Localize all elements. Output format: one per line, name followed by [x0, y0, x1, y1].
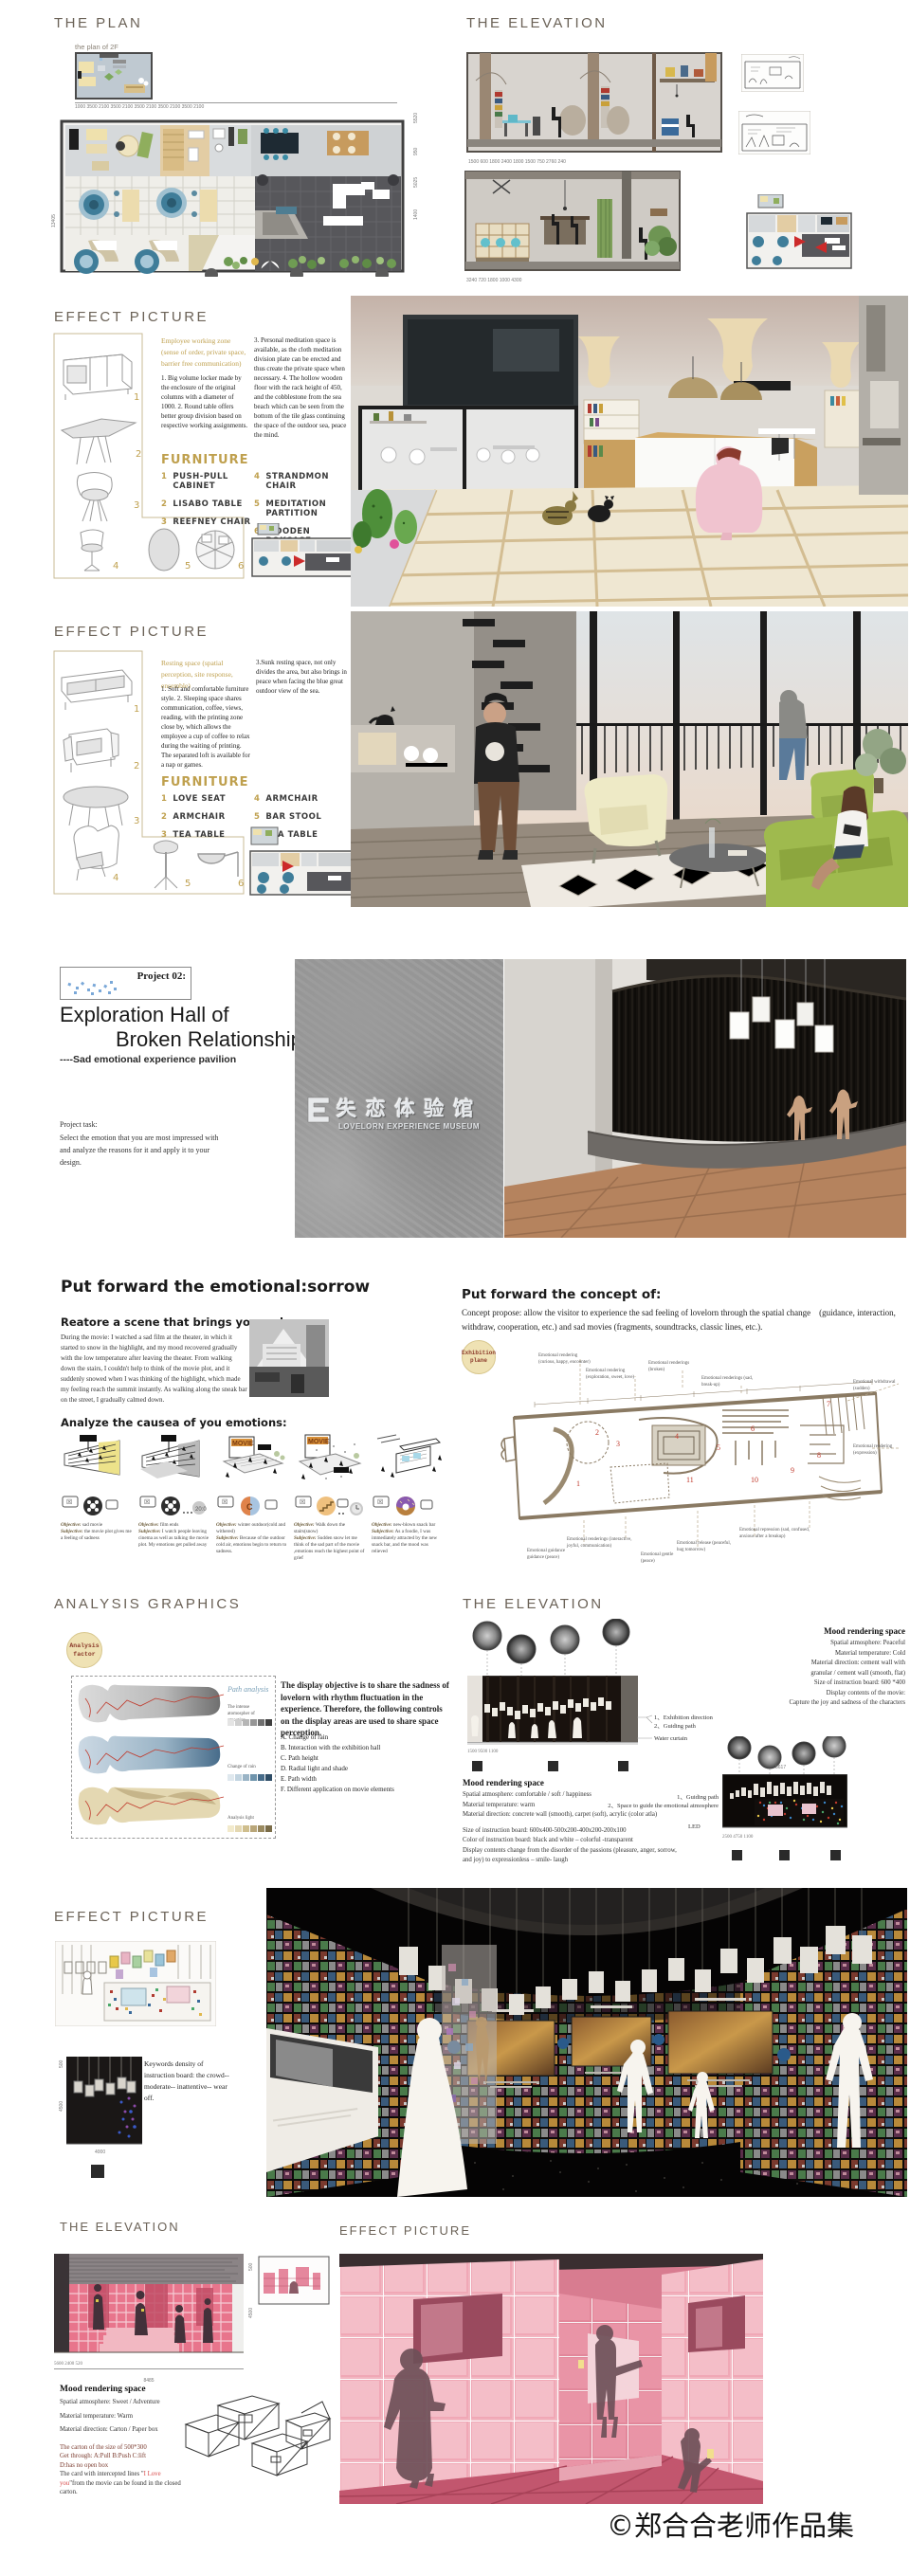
mood-bottom-block: Mood rendering space Spatial atmosphere:… — [60, 2385, 183, 2497]
concept-label-top-2: Emotional rendering (exploration, sweet,… — [586, 1369, 641, 1381]
display-objective-text: The display objective is to share the sa… — [281, 1679, 453, 1739]
concept-label-top-3: Emotional renderings (broken) — [648, 1361, 700, 1373]
plan-2f-label: the plan of 2F — [75, 43, 118, 51]
svg-text:9: 9 — [791, 1466, 794, 1475]
concept-title: Put forward the concept of: — [462, 1287, 661, 1302]
donut-icon: ☒ — [372, 1495, 444, 1517]
plan-dim-left: 13405 — [51, 214, 57, 227]
portfolio-board: THE PLAN the plan of 2F 1000 3500 2100 3… — [0, 0, 910, 2576]
museum-name-cn: 失 恋 体 验 馆 — [337, 1094, 498, 1122]
emotion-card-4: MOVIE ☒ Objective: Walk down the stairs(… — [294, 1433, 366, 1562]
concept-label-bottom-1: Emotional guidance guidance (peace) — [527, 1549, 576, 1561]
atmosphere-swatches — [227, 1719, 272, 1726]
elev1-leaders — [637, 1712, 654, 1742]
effect2-furniture-title: FURNITURE — [161, 775, 248, 789]
card-line: The card with intercepted lines "I Love … — [60, 2470, 183, 2497]
cinema-facade-sketch-2: MOVIE — [294, 1433, 366, 1490]
elevation-mid-drawing-1 — [467, 1676, 638, 1748]
plan-2f-thumbnail — [75, 52, 153, 100]
svg-text:☒: ☒ — [222, 1498, 227, 1506]
emotion-card-1: ☒ Objective: sad movie Subjective: the m… — [61, 1433, 133, 1542]
svg-text:MOVIE: MOVIE — [308, 1439, 330, 1445]
effect2-render — [351, 611, 908, 907]
effect2-furniture-col1: 1LOVE SEAT 2ARMCHAIR 3TEA TABLE — [161, 794, 251, 848]
svg-text:☒: ☒ — [377, 1498, 383, 1506]
svg-text:6: 6 — [238, 879, 244, 889]
street-photo — [249, 1319, 329, 1397]
svg-text:1: 1 — [134, 704, 139, 715]
sketch-thumbnail-2 — [738, 111, 810, 154]
svg-text:7: 7 — [827, 1400, 830, 1408]
film-reel-icon: ☒ — [61, 1495, 133, 1517]
plan-title: THE PLAN — [54, 15, 142, 31]
elevation-drawing-1 — [466, 52, 722, 156]
restore-text: During the movie: I watched a sad film a… — [61, 1333, 248, 1406]
emotion-card-3: MOVIE ☒ C Objective: winter outdoor(cold… — [216, 1433, 288, 1555]
museum-logo-icon — [302, 1092, 335, 1124]
svg-text:2: 2 — [134, 761, 139, 771]
cinema-facade-sketch-1: MOVIE — [216, 1433, 288, 1490]
effect1-zone-title: Employee working zone (sense of order, p… — [161, 336, 248, 370]
svg-text:3: 3 — [134, 816, 139, 826]
svg-text:4: 4 — [675, 1432, 679, 1441]
concept-label-bottom-5: Emotional repression (sad, confused, anx… — [739, 1528, 813, 1540]
emotion-card-5: ☒ Objective: new-blown snack bar Subject… — [372, 1433, 444, 1555]
elevation-mid2-dims: 2500 4750 1100 — [722, 1835, 847, 1840]
plan-dims-top: 1000 3500 2100 3500 2100 3500 2100 3500 … — [75, 104, 397, 110]
elevation-bottom-drawing — [54, 2254, 244, 2358]
elevation1-dims: 1500 600 1800 2400 1800 1500 750 2760 24… — [468, 159, 720, 165]
exhibition-plane-badge: Exhibitionplane — [462, 1340, 496, 1374]
elevation-mid-drawing-2 — [722, 1774, 847, 1831]
main-floor-plan — [60, 119, 409, 277]
svg-text:4: 4 — [113, 873, 118, 883]
elevation-drawing-2 — [464, 171, 681, 275]
dots-pattern — [66, 979, 123, 996]
museum-name-en: LOVELORN EXPERIENCE MUSEUM — [338, 1122, 509, 1131]
analysis-title: ANALYSIS GRAPHICS — [54, 1596, 241, 1612]
concept-label-right-1: Emotional withdrawal (sudden) — [853, 1380, 906, 1392]
effect3-speaker-box — [91, 2165, 104, 2178]
svg-text:4: 4 — [113, 561, 118, 571]
speaker-box-4 — [732, 1850, 742, 1860]
concept-label-right-2: Emotional rendering (expression) — [853, 1444, 906, 1457]
project2-task-text: Select the emotion that you are most imp… — [60, 1132, 230, 1169]
elev2-label-3: LED — [688, 1823, 701, 1830]
svg-text:5: 5 — [185, 561, 191, 571]
svg-text:8: 8 — [817, 1451, 821, 1460]
elevation-bottom-title: THE ELEVATION — [60, 2220, 180, 2234]
effect1-para-left: 1. Big volume locker made by the enclosu… — [161, 373, 248, 430]
effect3-dim-4500: 4500 — [59, 2101, 64, 2112]
effect1-para-right: 3. Personal meditation space is availabl… — [254, 336, 351, 440]
svg-text:6: 6 — [751, 1424, 755, 1433]
effect4-title: EFFECT PICTURE — [339, 2223, 471, 2238]
svg-text:6: 6 — [238, 561, 244, 571]
elev1-label-2: 2、Guiding path — [654, 1720, 696, 1730]
elevation2-dims: 3240 720 1800 1000 4300 — [466, 278, 679, 283]
mood2-block: Mood rendering space Spatial atmosphere:… — [463, 1778, 685, 1866]
path-analysis-label: Path analysis — [227, 1685, 268, 1694]
analysis-factor-badge: Analysisfactor — [66, 1632, 102, 1668]
svg-text:3: 3 — [616, 1440, 620, 1448]
project2-badge-box: Project 02: — [60, 967, 191, 1000]
project2-task-title: Project task: — [60, 1120, 98, 1129]
temperature-icon: ☒ C — [216, 1495, 288, 1517]
rain-legend-label: Change of rain — [227, 1765, 271, 1769]
project2-title-line2: Broken Relationship — [116, 1027, 302, 1052]
svg-text:1: 1 — [576, 1479, 580, 1488]
mood1-block: Mood rendering space Spatial atmosphere:… — [754, 1626, 905, 1709]
project2-render — [504, 959, 906, 1238]
cinema-sketch-2 — [138, 1433, 210, 1490]
svg-text:MOVIE: MOVIE — [232, 1441, 254, 1447]
concrete-wall-photo: 失 恋 体 验 馆 LOVELORN EXPERIENCE MUSEUM — [295, 959, 503, 1238]
effect1-key-plan — [250, 523, 355, 578]
analyze-title: Analyze the causea of you emotions: — [61, 1416, 287, 1429]
effect3-dim-4000: 4000 — [95, 2150, 105, 2155]
svg-text:11: 11 — [686, 1476, 694, 1484]
effect1-furniture-col1: 1PUSH-PULL CABINET 2LISABO TABLE 3REEFNE… — [161, 472, 251, 535]
svg-text:20:0: 20:0 — [195, 1507, 207, 1513]
emotion-card-2: ☒ 20:0 Objective: film ends Subjective: … — [138, 1433, 210, 1549]
effect2-key-plan — [248, 849, 356, 897]
light-swatches — [227, 1825, 272, 1832]
effect1-furniture-title: FURNITURE — [161, 453, 248, 467]
effect2-title: EFFECT PICTURE — [54, 624, 209, 640]
rain-swatches — [227, 1774, 272, 1781]
concept-label-bottom-2: Emotional renderings (interactive, joyfu… — [567, 1537, 633, 1550]
sketch-thumbnail-1 — [741, 54, 804, 92]
svg-text:C: C — [246, 1502, 253, 1512]
emotional-title: Put forward the emotional:sorrow — [61, 1278, 370, 1297]
concept-label-top-1: Emotional rendering (curious, happy, enc… — [538, 1353, 593, 1366]
display-objective-list: A. Change of rainB. Interaction with the… — [281, 1732, 453, 1795]
svg-text:☒: ☒ — [144, 1498, 150, 1506]
elevation-mid1-dims: 1500 9500 1100 — [467, 1750, 638, 1754]
concept-label-bottom-3: Emotional gentle (peace) — [641, 1552, 684, 1565]
key-plan-thumbnail — [745, 194, 853, 270]
project2-badge: Project 02: — [137, 971, 186, 982]
speaker-box-1 — [472, 1761, 482, 1771]
svg-text:☒: ☒ — [66, 1498, 72, 1506]
svg-text:3: 3 — [134, 500, 139, 511]
effect3-watercolor-sketch — [55, 1941, 216, 2026]
effect3-dim-500: 500 — [59, 2060, 64, 2068]
elev1-label-3: Water curtain — [654, 1735, 687, 1742]
pink-key-plan — [258, 2256, 330, 2305]
svg-text:2: 2 — [595, 1428, 599, 1437]
concept-label-bottom-4: Emotional release (peaceful, hug tomorro… — [677, 1541, 734, 1553]
svg-text:☒: ☒ — [300, 1498, 305, 1506]
stairs-icon: ☒ — [294, 1495, 366, 1517]
plan-dims-right: 5520 950 5025 1400 — [413, 123, 424, 226]
speaker-box-5 — [779, 1850, 790, 1860]
elev-bottom-dim500: 500 — [248, 2263, 254, 2271]
svg-text:5: 5 — [185, 879, 191, 889]
effect3-keywords-text: Keywords density of instruction board: t… — [144, 2059, 231, 2104]
project2-subtitle: ----Sad emotional experience pavilion — [60, 1054, 236, 1065]
effect4-render — [339, 2254, 763, 2504]
svg-text:10: 10 — [751, 1476, 758, 1484]
elev-bottom-dims: 5600 2400 520 — [54, 2362, 244, 2367]
svg-text:1: 1 — [134, 392, 139, 403]
effect2-para-right: 3.Sunk resting space, not only divides t… — [256, 658, 349, 696]
concept-text: Concept propose: allow the visitor to ex… — [462, 1306, 903, 1334]
elev2-dim-top: 8617 — [775, 1765, 786, 1770]
carton-wireframes — [180, 2388, 332, 2478]
elev2-label-2: 2、Space to guide the emotional atmospher… — [590, 1800, 719, 1809]
effect1-render — [351, 296, 908, 607]
effect1-title: EFFECT PICTURE — [54, 309, 209, 325]
portrait-circles-row2 — [726, 1736, 849, 1774]
speaker-box-2 — [548, 1761, 558, 1771]
svg-text:2: 2 — [136, 449, 141, 460]
elevation-mid-title: THE ELEVATION — [463, 1596, 604, 1612]
effect3-render — [266, 1888, 907, 2197]
effect3-title: EFFECT PICTURE — [54, 1909, 209, 1925]
concept-label-top-4: Emotional renderings (sad, break-up) — [701, 1376, 755, 1388]
light-legend-label: Analysis light — [227, 1816, 271, 1821]
film-reel-end-icon: ☒ 20:0 — [138, 1495, 210, 1517]
snack-bar-sketch — [372, 1433, 444, 1490]
portrait-circles-row1 — [472, 1619, 643, 1676]
elev-bottom-dim4500: 4500 — [248, 2308, 254, 2318]
effect3-dark-sketch — [66, 2057, 142, 2148]
effect2-para-left: 1. Soft and comfortable furniture style.… — [161, 684, 252, 770]
speaker-box-3 — [618, 1761, 628, 1771]
elevation-top-title: THE ELEVATION — [466, 15, 608, 31]
speaker-box-6 — [830, 1850, 841, 1860]
cinema-sketch-1 — [61, 1433, 133, 1490]
project2-title-line1: Exploration Hall of — [60, 1003, 229, 1027]
svg-text:5: 5 — [717, 1443, 720, 1452]
effect2-key-plan-small — [250, 826, 279, 845]
copyright-text: ©郑合合老师作品集 — [607, 2504, 854, 2544]
